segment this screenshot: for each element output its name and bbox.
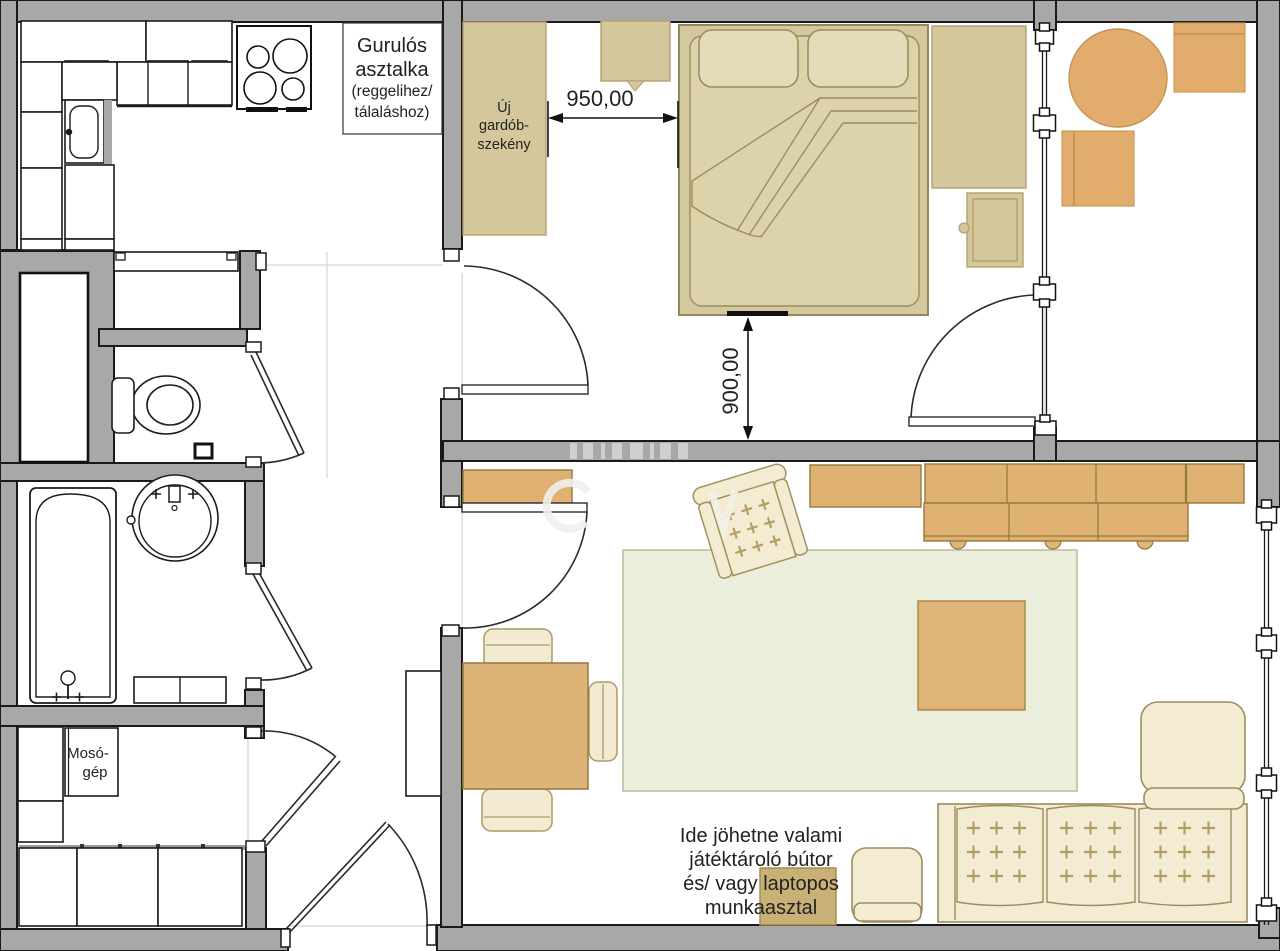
svg-text:Mosó-: Mosó- (67, 745, 109, 762)
svg-text:(reggelihez/: (reggelihez/ (352, 83, 434, 100)
svg-text:tálaláshoz): tálaláshoz) (355, 104, 430, 121)
svg-text:gardób-: gardób- (479, 118, 529, 134)
svg-text:Új: Új (497, 99, 511, 116)
svg-text:950,00: 950,00 (566, 86, 633, 111)
svg-text:asztalka: asztalka (355, 59, 429, 81)
svg-text:900,00: 900,00 (718, 347, 743, 414)
svg-text:játéktároló bútor: játéktároló bútor (688, 849, 833, 871)
svg-text:és/ vagy laptopos: és/ vagy laptopos (683, 873, 839, 895)
svg-text:Ide jöhetne valami: Ide jöhetne valami (680, 825, 842, 847)
svg-text:Gurulós: Gurulós (357, 35, 427, 57)
svg-text:szekény: szekény (477, 137, 531, 153)
svg-text:munkaasztal: munkaasztal (705, 897, 817, 919)
svg-text:gép: gép (82, 764, 107, 781)
